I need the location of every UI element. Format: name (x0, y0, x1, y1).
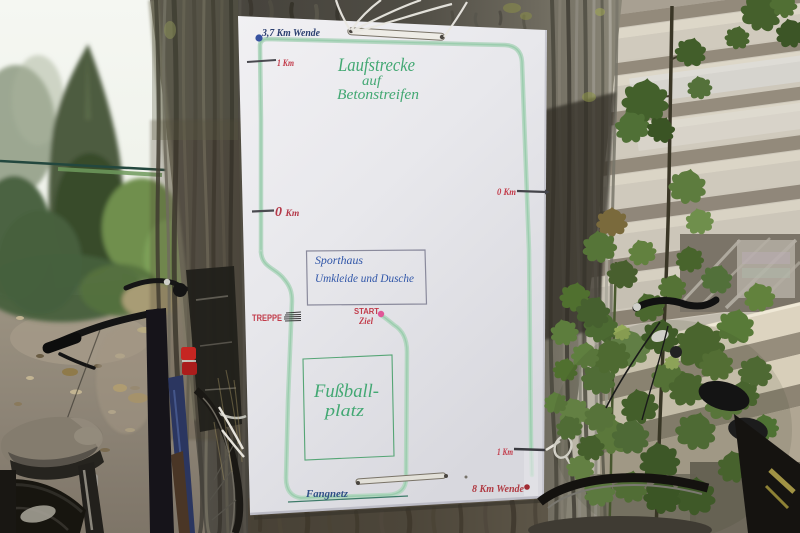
svg-text:1 Km: 1 Km (277, 59, 294, 69)
svg-text:Fußball-: Fußball- (313, 381, 379, 402)
svg-text:8 Km Wende: 8 Km Wende (472, 484, 525, 495)
svg-text:Umkleide und Dusche: Umkleide und Dusche (315, 273, 414, 285)
svg-text:platz: platz (324, 401, 365, 420)
svg-text:START: START (354, 307, 379, 316)
svg-text:Fangnetz: Fangnetz (305, 489, 348, 500)
svg-text:Sporthaus: Sporthaus (315, 255, 364, 267)
svg-text:3,7 Km Wende: 3,7 Km Wende (261, 28, 320, 39)
svg-text:Ziel: Ziel (358, 317, 373, 327)
svg-text:TREPPE: TREPPE (252, 313, 282, 323)
svg-text:1 Km: 1 Km (497, 448, 513, 458)
svg-text:0 Km: 0 Km (497, 188, 516, 198)
svg-text:Laufstrecke: Laufstrecke (337, 55, 415, 76)
svg-text:Betonstreifen: Betonstreifen (337, 87, 419, 103)
